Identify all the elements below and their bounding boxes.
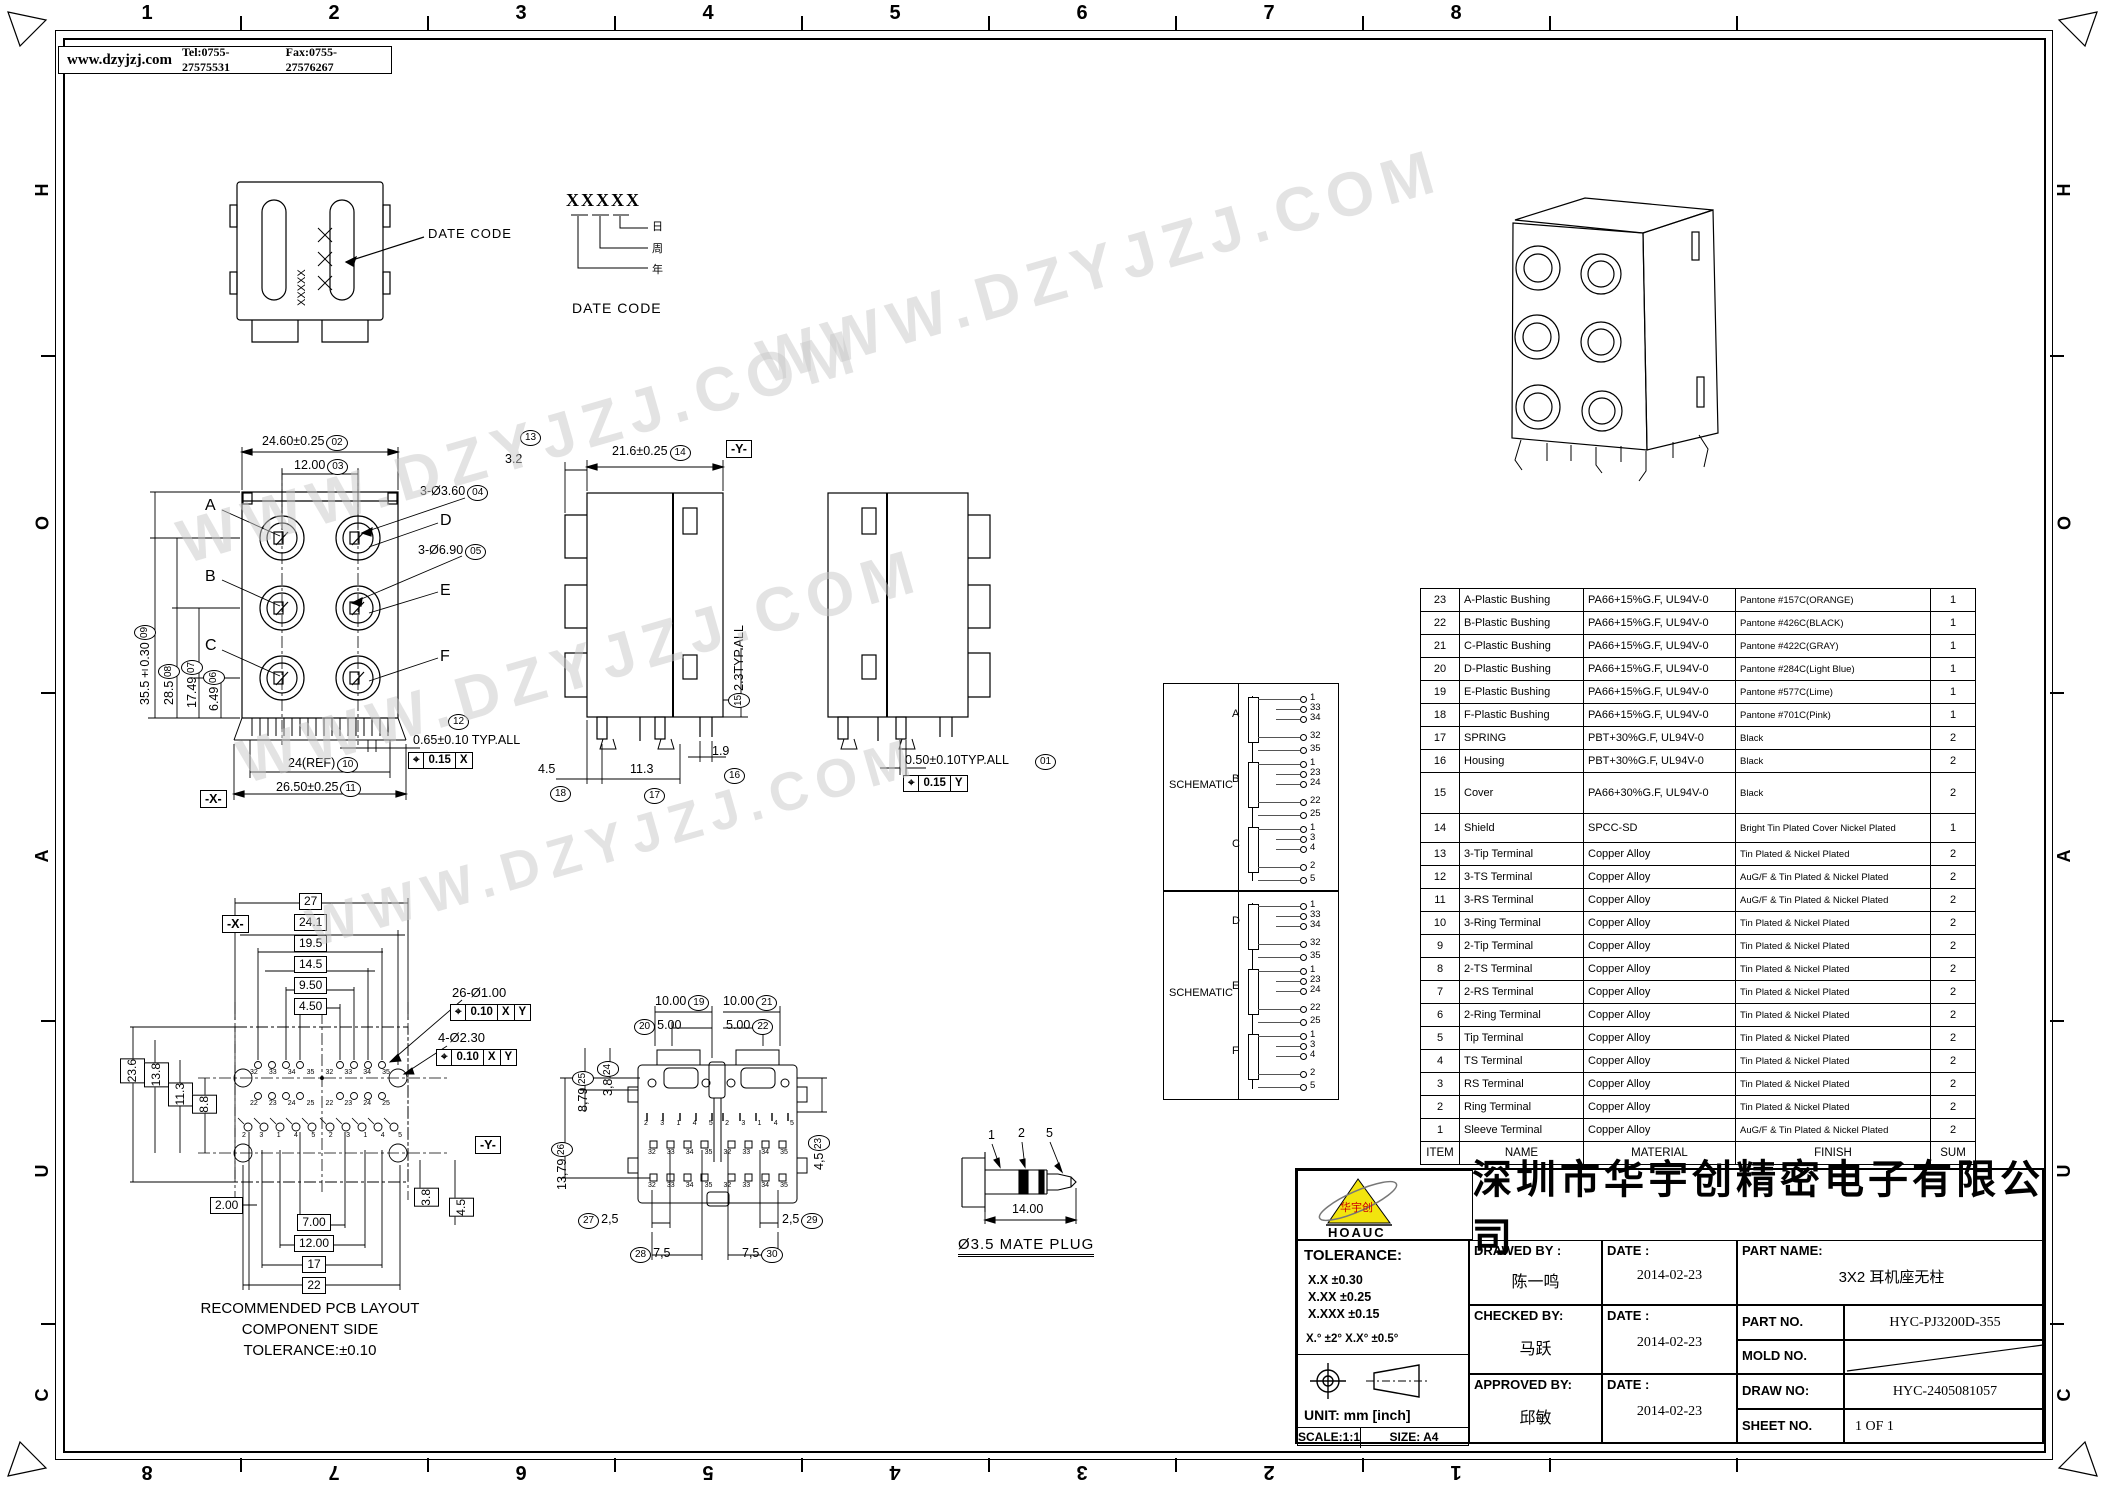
- pad-number: 22: [250, 1100, 258, 1107]
- pcb-dim: 14.5: [294, 956, 327, 973]
- parts-table-cell: 2: [1931, 1027, 1976, 1050]
- schematic-part: [1258, 957, 1300, 958]
- parts-table-cell: Copper Alloy: [1584, 1073, 1736, 1096]
- dim-21-6: 21.6±0.2514: [612, 444, 693, 461]
- schematic-part: 2: [1310, 860, 1315, 871]
- pin-number: 2: [644, 1120, 648, 1127]
- drawed-date: 2014-02-23: [1603, 1268, 1736, 1284]
- schematic-part: [1300, 913, 1307, 920]
- schematic-part: [1276, 1046, 1300, 1047]
- projection-symbol: [1304, 1359, 1454, 1403]
- schematic-part: 22: [1310, 795, 1321, 806]
- date-label: DATE :: [1603, 1241, 1736, 1260]
- checked-date: 2014-02-23: [1603, 1335, 1736, 1351]
- parts-table-row: 20D-Plastic BushingPA66+15%G.F, UL94V-0P…: [1421, 658, 1976, 681]
- drawed-by-name: 陈一鸣: [1470, 1268, 1601, 1292]
- schematic-part: [1258, 906, 1300, 907]
- parts-table-cell: 1: [1931, 658, 1976, 681]
- drawing-sheet: 1827364554637281HHOOAAUUCC www.dzyjzj.co…: [0, 0, 2105, 1488]
- schematic-part: [1276, 839, 1300, 840]
- parts-table-cell: AuG/F & Tin Plated & Nickel Plated: [1736, 866, 1931, 889]
- pad-number: 5: [398, 1132, 402, 1139]
- parts-table-cell: 1: [1931, 681, 1976, 704]
- parts-table-row: 17SPRINGPBT+30%G.F, UL94V-0Black2: [1421, 727, 1976, 750]
- company-logo: 华宇创 HOAUC: [1298, 1171, 1472, 1239]
- parts-table-cell: PA66+15%G.F, UL94V-0: [1584, 635, 1736, 658]
- logo-mark-text: 华宇创: [1340, 1200, 1373, 1214]
- port-label-c: C: [205, 637, 217, 655]
- pcb-dim: 24.1: [294, 914, 327, 931]
- pad-number: 23: [344, 1100, 352, 1107]
- parts-table-cell: 2: [1421, 1096, 1460, 1119]
- pcb-top-dims: 2724.119.514.59.504.50: [294, 893, 327, 1015]
- plug-dim-14: 14.00: [1012, 1202, 1043, 1216]
- parts-table-cell: Tin Plated & Nickel Plated: [1736, 1096, 1931, 1119]
- schematic-section-name: C: [1232, 838, 1240, 850]
- parts-table-cell: TS Terminal: [1460, 1050, 1584, 1073]
- parts-table-cell: D-Plastic Bushing: [1460, 658, 1584, 681]
- parts-table-cell: PA66+15%G.F, UL94V-0: [1584, 612, 1736, 635]
- pad-number: 32: [326, 1069, 334, 1076]
- company-name: 深圳市华宇创精密电子有限公司: [1472, 1170, 2046, 1240]
- parts-table-cell: PA66+15%G.F, UL94V-0: [1584, 658, 1736, 681]
- part-name-label: PART NAME:: [1738, 1241, 2045, 1260]
- parts-table-cell: 2: [1931, 750, 1976, 773]
- schematic-part: 34: [1310, 712, 1321, 723]
- schematic-part: [1300, 988, 1307, 995]
- pin-number: 33: [667, 1182, 675, 1189]
- parts-table-cell: 7: [1421, 981, 1460, 1004]
- datecode-legend-lines: [571, 215, 648, 268]
- schematic-part: [1258, 737, 1300, 738]
- parts-table-cell: Tip Terminal: [1460, 1027, 1584, 1050]
- parts-table-row: 133-Tip TerminalCopper AlloyTin Plated &…: [1421, 843, 1976, 866]
- pad-number: 3: [259, 1132, 263, 1139]
- pad-number: 4: [294, 1132, 298, 1139]
- schematic-label: SCHEMATIC: [1166, 987, 1236, 999]
- parts-table-row: 2Ring TerminalCopper AlloyTin Plated & N…: [1421, 1096, 1976, 1119]
- parts-table-row: 21C-Plastic BushingPA66+15%G.F, UL94V-0P…: [1421, 635, 1976, 658]
- parts-table-cell: 2: [1931, 912, 1976, 935]
- dim-2-3: 152.3TYP.ALL: [728, 600, 750, 710]
- datum-flag-y: -Y-: [726, 440, 752, 458]
- balloon-12: 12: [448, 714, 469, 730]
- parts-table-cell: Black: [1736, 773, 1931, 814]
- approved-by-cell: APPROVED BY: 邱敏: [1469, 1374, 1602, 1444]
- schematic-part: [1300, 1006, 1307, 1013]
- bottom-pin-row-1: 2314523145: [644, 1120, 794, 1127]
- parts-table-cell: PA66+15%G.F, UL94V-0: [1584, 704, 1736, 727]
- datecode-legend-caption: DATE CODE: [572, 300, 662, 316]
- parts-table-cell: 1: [1931, 704, 1976, 727]
- dim-22: 5.0022: [726, 1018, 775, 1035]
- draw-no-label-cell: DRAW NO:: [1737, 1374, 1844, 1409]
- sheet-no-value: 1 OF 1: [1844, 1409, 2046, 1444]
- parts-table-cell: 3-TS Terminal: [1460, 866, 1584, 889]
- parts-table-cell: 2-Ring Terminal: [1460, 1004, 1584, 1027]
- rear-side-view-lines: [828, 493, 990, 775]
- parts-table-row: 23A-Plastic BushingPA66+15%G.F, UL94V-0P…: [1421, 589, 1976, 612]
- schematic-part: 32: [1310, 937, 1321, 948]
- parts-table-cell: 20: [1421, 658, 1460, 681]
- parts-table-cell: Tin Plated & Nickel Plated: [1736, 1004, 1931, 1027]
- pcb-dim: 27: [299, 893, 322, 910]
- plug-caption: Ø3.5 MATE PLUG: [958, 1236, 1094, 1257]
- parts-table-cell: Bright Tin Plated Cover Nickel Plated: [1736, 814, 1931, 843]
- pcb-dim-4-5: 4.5: [449, 1198, 474, 1217]
- parts-table-cell: 3: [1421, 1073, 1460, 1096]
- parts-table-cell: 1: [1931, 612, 1976, 635]
- parts-table-cell: 9: [1421, 935, 1460, 958]
- parts-table-cell: SPCC-SD: [1584, 814, 1736, 843]
- pin-number: 34: [761, 1149, 769, 1156]
- mold-no-label-cell: MOLD NO.: [1737, 1340, 1844, 1374]
- parts-table-cell: Black: [1736, 727, 1931, 750]
- schematic-part: [1276, 1056, 1300, 1057]
- datecode-legend-year: 年: [652, 261, 663, 277]
- pad-number: 24: [288, 1100, 296, 1107]
- parts-table-cell: 2: [1931, 958, 1976, 981]
- parts-table-cell: Shield: [1460, 814, 1584, 843]
- pad-number: 34: [288, 1069, 296, 1076]
- schematic-part: [1300, 826, 1307, 833]
- schematic-part: [1258, 971, 1300, 972]
- schematic-part: 5: [1310, 1080, 1315, 1091]
- gdt-position-y: ⌖0.15Y: [903, 775, 968, 792]
- dim-4-5: 4.5: [538, 762, 555, 776]
- tolerance-cell: TOLERANCE: X.X ±0.30 X.XX ±0.25 X.XXX ±0…: [1297, 1240, 1469, 1446]
- datecode-legend-day: 日: [652, 218, 663, 234]
- bottom-pin-row-2: 3233343532333435: [648, 1149, 788, 1156]
- parts-table-cell: Tin Plated & Nickel Plated: [1736, 843, 1931, 866]
- parts-table-cell: 1: [1421, 1119, 1460, 1142]
- parts-table-cell: E-Plastic Bushing: [1460, 681, 1584, 704]
- parts-table-cell: 1: [1931, 814, 1976, 843]
- pcb-dim-8-8: 8.8: [192, 1095, 217, 1114]
- parts-table-cell: 8: [1421, 958, 1460, 981]
- dim-30: 7,530: [742, 1246, 785, 1263]
- pcb-dim: 22: [302, 1277, 325, 1294]
- tolerance-angles: X.° ±2° X.X° ±0.5°: [1306, 1333, 1398, 1345]
- parts-table-cell: PA66+30%G.F, UL94V-0: [1584, 773, 1736, 814]
- schematic-part: [1276, 849, 1300, 850]
- parts-table-cell: Copper Alloy: [1584, 843, 1736, 866]
- pin-number: 34: [686, 1182, 694, 1189]
- pin-number: 35: [780, 1149, 788, 1156]
- schematic-label: SCHEMATIC: [1166, 779, 1236, 791]
- tolerance-line-2: X.XX ±0.25: [1308, 1290, 1371, 1304]
- pad-number: 25: [382, 1100, 390, 1107]
- parts-table-cell: 16: [1421, 750, 1460, 773]
- parts-table-cell: 10: [1421, 912, 1460, 935]
- schematic-part: [1258, 815, 1300, 816]
- parts-table-cell: Copper Alloy: [1584, 1096, 1736, 1119]
- dim-hole-big: 3-Ø6.9005: [418, 543, 488, 560]
- parts-table-cell: Pantone #577C(Lime): [1736, 681, 1931, 704]
- dim-pitch: 12.0003: [294, 458, 350, 475]
- schematic-part: [1300, 877, 1307, 884]
- pad-number: 3: [346, 1132, 350, 1139]
- pcb-caption: RECOMMENDED PCB LAYOUT COMPONENT SIDE TO…: [160, 1298, 460, 1361]
- parts-table-cell: Copper Alloy: [1584, 981, 1736, 1004]
- pcb-pad-row-2: 2223242522232425: [250, 1100, 390, 1107]
- bottom-pin-row-3: 3233343532333435: [648, 1182, 788, 1189]
- schematic-part: [1276, 981, 1300, 982]
- approved-date-cell: DATE : 2014-02-23: [1602, 1374, 1737, 1444]
- schematic-part: [1300, 1084, 1307, 1091]
- logo-latin-text: HOAUC: [1328, 1225, 1386, 1239]
- pcb-datum-y: -Y-: [475, 1136, 501, 1154]
- parts-table-cell: PBT+30%G.F, UL94V-0: [1584, 727, 1736, 750]
- parts-table-cell: Housing: [1460, 750, 1584, 773]
- tolerance-title: TOLERANCE:: [1304, 1247, 1402, 1264]
- parts-table-cell: 11: [1421, 889, 1460, 912]
- parts-table-cell: Cover: [1460, 773, 1584, 814]
- dim-h2: 17.4907: [181, 618, 203, 708]
- schematic-part: 25: [1310, 1015, 1321, 1026]
- parts-table-cell: Tin Plated & Nickel Plated: [1736, 981, 1931, 1004]
- schematic-part: [1258, 829, 1300, 830]
- parts-table-cell: 18: [1421, 704, 1460, 727]
- parts-table-cell: 3-Tip Terminal: [1460, 843, 1584, 866]
- parts-table-cell: 19: [1421, 681, 1460, 704]
- parts-table-cell: 2: [1931, 1050, 1976, 1073]
- parts-table-cell: 1: [1931, 635, 1976, 658]
- parts-table-cell: 2: [1931, 1096, 1976, 1119]
- parts-table-cell: 1: [1931, 589, 1976, 612]
- parts-table-cell: Copper Alloy: [1584, 935, 1736, 958]
- parts-table-cell: Pantone #157C(ORANGE): [1736, 589, 1931, 612]
- pin-number: 4: [774, 1120, 778, 1127]
- part-name-value: 3X2 耳机座无柱: [1738, 1266, 2045, 1287]
- tolerance-line-1: X.X ±0.30: [1308, 1273, 1363, 1287]
- parts-table-row: 62-Ring TerminalCopper AlloyTin Plated &…: [1421, 1004, 1976, 1027]
- parts-table-cell: 2: [1931, 773, 1976, 814]
- schematic-part: [1300, 734, 1307, 741]
- schematic-part: [1300, 761, 1307, 768]
- unit-note: UNIT: mm [inch]: [1304, 1407, 1411, 1423]
- parts-table-cell: PA66+15%G.F, UL94V-0: [1584, 681, 1736, 704]
- parts-table-cell: Copper Alloy: [1584, 912, 1736, 935]
- parts-table-cell: 5: [1421, 1027, 1460, 1050]
- parts-table-cell: 22: [1421, 612, 1460, 635]
- parts-table-row: 1Sleeve TerminalCopper AlloyAuG/F & Tin …: [1421, 1119, 1976, 1142]
- parts-table-cell: 3-RS Terminal: [1460, 889, 1584, 912]
- parts-table-cell: Copper Alloy: [1584, 889, 1736, 912]
- dim-width-top: 24.60±0.2502: [262, 434, 350, 451]
- parts-table-cell: 2-RS Terminal: [1460, 981, 1584, 1004]
- pin-number: 32: [648, 1182, 656, 1189]
- schematic-part: [1300, 864, 1307, 871]
- pad-number: 23: [269, 1100, 277, 1107]
- parts-table-cell: Copper Alloy: [1584, 1004, 1736, 1027]
- parts-table-cell: AuG/F & Tin Plated & Nickel Plated: [1736, 1119, 1931, 1142]
- parts-table-cell: 2-TS Terminal: [1460, 958, 1584, 981]
- schematic-part: [1300, 1043, 1307, 1050]
- pin-number: 35: [705, 1182, 713, 1189]
- schematic-part: [1300, 954, 1307, 961]
- parts-table-row: 14ShieldSPCC-SDBright Tin Plated Cover N…: [1421, 814, 1976, 843]
- balloon-18: 18: [550, 786, 571, 802]
- dim-24: 3,824: [597, 1028, 619, 1096]
- checked-by-label: CHECKED BY:: [1470, 1306, 1601, 1325]
- parts-table-cell: AuG/F & Tin Plated & Nickel Plated: [1736, 889, 1931, 912]
- parts-table-row: 19E-Plastic BushingPA66+15%G.F, UL94V-0P…: [1421, 681, 1976, 704]
- schematic-part: [1258, 750, 1300, 751]
- part-no-label: PART NO.: [1738, 1312, 1843, 1331]
- schematic-section-name: D: [1232, 915, 1240, 927]
- pcb-pad-row-3: 2314523145: [242, 1132, 402, 1139]
- schematic-part: [1300, 771, 1307, 778]
- pad-number: 34: [363, 1069, 371, 1076]
- pin-number: 32: [648, 1149, 656, 1156]
- approved-by-label: APPROVED BY:: [1470, 1375, 1601, 1394]
- drawed-by-cell: DRAWED BY : 陈一鸣: [1469, 1240, 1602, 1305]
- checked-by-name: 马跃: [1470, 1335, 1601, 1359]
- schematic-part: [1300, 1071, 1307, 1078]
- schematic-part: [1276, 784, 1300, 785]
- schematic-part: [1300, 941, 1307, 948]
- schematic-part: [1300, 706, 1307, 713]
- schematic-part: [1258, 699, 1300, 700]
- schematic-part: [1300, 1019, 1307, 1026]
- schematic-part: [1300, 747, 1307, 754]
- pad-number: 32: [250, 1069, 258, 1076]
- dim-h3: 28.508: [158, 570, 180, 705]
- sheet-no-label: SHEET NO.: [1738, 1416, 1843, 1435]
- schematic-box-2: SCHEMATIC D133343235E123242225F13425: [1163, 890, 1339, 1100]
- pin-number: 5: [709, 1120, 713, 1127]
- parts-table-cell: Copper Alloy: [1584, 1027, 1736, 1050]
- schematic-part: 32: [1310, 730, 1321, 741]
- schematic-part: [1258, 1022, 1300, 1023]
- drawed-by-label: DRAWED BY :: [1470, 1241, 1601, 1260]
- pcb-caption-line: COMPONENT SIDE: [160, 1319, 460, 1340]
- schematic-part: 24: [1310, 984, 1321, 995]
- schematic-part: 24: [1310, 777, 1321, 788]
- schematic-part: [1258, 802, 1300, 803]
- pad-number: 35: [307, 1069, 315, 1076]
- dim-width-bottom: 26.50±0.2511: [276, 780, 363, 797]
- parts-table-cell: Sleeve Terminal: [1460, 1119, 1584, 1142]
- parts-table-cell: 14: [1421, 814, 1460, 843]
- balloon-13: 13: [520, 430, 541, 446]
- draw-no-label: DRAW NO:: [1738, 1381, 1843, 1400]
- parts-table-cell: 2: [1931, 866, 1976, 889]
- schematic-part: [1258, 1009, 1300, 1010]
- schematic-part: [1300, 1033, 1307, 1040]
- dim-height: 35.5±0.3009: [134, 525, 156, 705]
- dim-width-ref: 24(REF)10: [288, 756, 360, 773]
- parts-table-cell: 2: [1931, 843, 1976, 866]
- parts-table-row: 3RS TerminalCopper AlloyTin Plated & Nic…: [1421, 1073, 1976, 1096]
- schematic-part: [1258, 867, 1300, 868]
- pcb-dim: 4.50: [294, 998, 327, 1015]
- pin-number: 34: [686, 1149, 694, 1156]
- checked-by-cell: CHECKED BY: 马跃: [1469, 1305, 1602, 1374]
- parts-table-cell: Tin Plated & Nickel Plated: [1736, 935, 1931, 958]
- parts-table-cell: 15: [1421, 773, 1460, 814]
- parts-table-cell: 3-Ring Terminal: [1460, 912, 1584, 935]
- schematic-part: [1300, 923, 1307, 930]
- part-no-value: HYC-PJ3200D-355: [1844, 1305, 2046, 1340]
- dim-1-9: 1.9: [712, 744, 729, 758]
- schematic-part: [1300, 836, 1307, 843]
- pcb-pad-row-1: 3233343532333435: [250, 1069, 390, 1076]
- pin-number: 33: [667, 1149, 675, 1156]
- pad-number: 25: [307, 1100, 315, 1107]
- approved-by-name: 邱敏: [1470, 1404, 1601, 1428]
- port-label-b: B: [205, 568, 216, 586]
- parts-table-row: 72-RS TerminalCopper AlloyTin Plated & N…: [1421, 981, 1976, 1004]
- checked-date-cell: DATE : 2014-02-23: [1602, 1305, 1737, 1374]
- dim-21: 10.0021: [723, 994, 779, 1011]
- pin-number: 4: [693, 1120, 697, 1127]
- pcb-dim-11-3: 11.3: [168, 1082, 193, 1106]
- schematic-part: [1276, 774, 1300, 775]
- parts-table-cell: Copper Alloy: [1584, 958, 1736, 981]
- parts-table-cell: RS Terminal: [1460, 1073, 1584, 1096]
- schematic-part: [1258, 880, 1300, 881]
- gdt-position-x: ⌖0.15X: [408, 752, 473, 769]
- parts-table-cell: PA66+15%G.F, UL94V-0: [1584, 589, 1736, 612]
- schematic-section-name: B: [1232, 773, 1239, 785]
- dim-hole-small: 3-Ø3.6004: [420, 484, 490, 501]
- port-label-e: E: [440, 582, 451, 600]
- size-cell: SIZE: A4: [1360, 1427, 1468, 1448]
- parts-table-row: 15CoverPA66+30%G.F, UL94V-0Black2: [1421, 773, 1976, 814]
- datum-flag-x: -X-: [200, 790, 227, 808]
- schematic-part: 4: [1310, 842, 1315, 853]
- part-name-cell: PART NAME: 3X2 耳机座无柱: [1737, 1240, 2046, 1305]
- schematic-part: [1300, 812, 1307, 819]
- parts-table: 23A-Plastic BushingPA66+15%G.F, UL94V-0P…: [1420, 588, 1976, 1165]
- schematic-part: [1258, 764, 1300, 765]
- schematic-part: [1258, 944, 1300, 945]
- parts-table-cell: 2: [1931, 1119, 1976, 1142]
- schematic-part: [1300, 968, 1307, 975]
- schematic-part: [1300, 716, 1307, 723]
- datecode-view-lines: [230, 182, 424, 342]
- parts-table-cell: Pantone #422C(GRAY): [1736, 635, 1931, 658]
- logo-cell: 华宇创 HOAUC: [1297, 1170, 1473, 1240]
- parts-table-cell: 13: [1421, 843, 1460, 866]
- port-label-d: D: [440, 512, 452, 530]
- pad-number: 24: [363, 1100, 371, 1107]
- pin-number: 35: [780, 1182, 788, 1189]
- parts-table-cell: Tin Plated & Nickel Plated: [1736, 958, 1931, 981]
- pad-number: 35: [382, 1069, 390, 1076]
- parts-table-cell: 6: [1421, 1004, 1460, 1027]
- parts-table-row: 113-RS TerminalCopper AlloyAuG/F & Tin P…: [1421, 889, 1976, 912]
- pcb-datum-x: -X-: [222, 915, 249, 933]
- dim-19: 10.0019: [655, 994, 711, 1011]
- port-label-a: A: [205, 497, 216, 515]
- pin-number: 2: [725, 1120, 729, 1127]
- parts-table-cell: Pantone #701C(Pink): [1736, 704, 1931, 727]
- schematic-part: [1276, 719, 1300, 720]
- pad-number: 2: [329, 1132, 333, 1139]
- pin-number: 32: [724, 1182, 732, 1189]
- pad-number: 5: [311, 1132, 315, 1139]
- parts-table-cell: 2: [1931, 935, 1976, 958]
- parts-table-cell: 2: [1931, 981, 1976, 1004]
- sheet-no-label-cell: SHEET NO.: [1737, 1409, 1844, 1444]
- schematic-part: 5: [1310, 873, 1315, 884]
- dim-0-50: 0.50±0.10TYP.ALL01: [905, 753, 1058, 770]
- plug-label-5: 5: [1046, 1126, 1053, 1140]
- drawed-date-cell: DATE : 2014-02-23: [1602, 1240, 1737, 1305]
